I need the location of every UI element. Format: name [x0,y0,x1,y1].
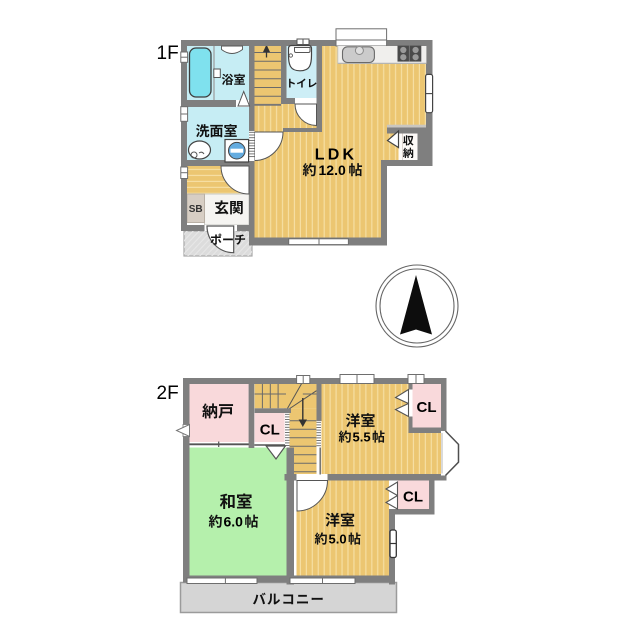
svg-text:CL: CL [403,489,423,506]
svg-text:CL: CL [417,399,437,416]
svg-text:5.5: 5.5 [353,430,371,445]
svg-text:5.0: 5.0 [329,532,347,547]
svg-text:LDK: LDK [315,147,357,164]
svg-text:6.0: 6.0 [224,514,244,530]
svg-text:CL: CL [260,422,280,439]
svg-text:2F: 2F [157,383,179,404]
svg-text:1F: 1F [157,43,179,64]
svg-text:SB: SB [189,204,203,215]
svg-text:12.0: 12.0 [319,162,346,178]
